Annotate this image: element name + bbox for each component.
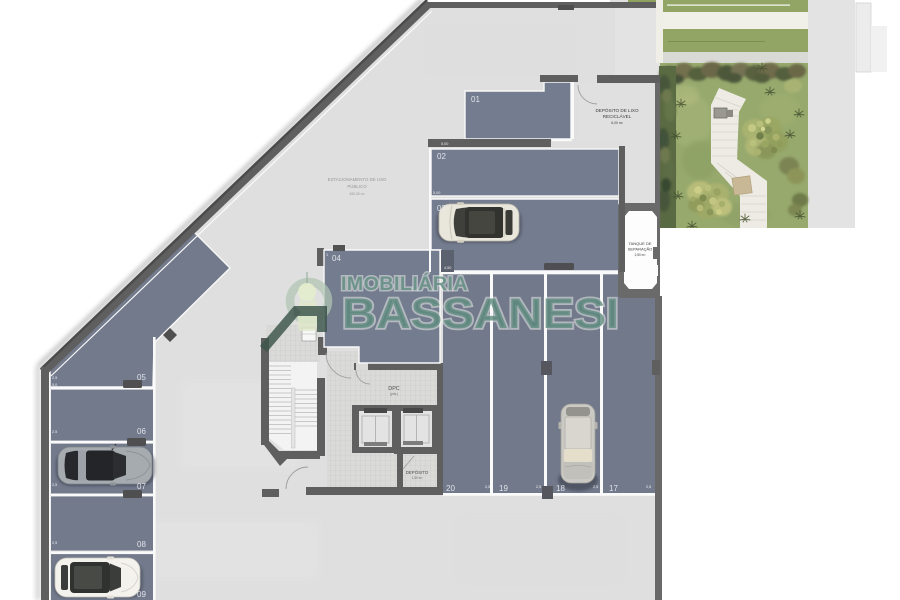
svg-text:2,5: 2,5 bbox=[536, 485, 541, 489]
svg-text:06: 06 bbox=[137, 427, 146, 436]
svg-text:18: 18 bbox=[556, 484, 565, 493]
svg-text:08: 08 bbox=[137, 540, 146, 549]
svg-text:DEPÓSITO DE LIXO: DEPÓSITO DE LIXO bbox=[595, 107, 638, 113]
svg-text:4,50: 4,50 bbox=[444, 266, 451, 270]
svg-text:5,0: 5,0 bbox=[52, 383, 57, 387]
svg-text:2,5: 2,5 bbox=[646, 485, 651, 489]
svg-text:04: 04 bbox=[332, 254, 341, 263]
svg-text:RECICLÁVEL: RECICLÁVEL bbox=[603, 113, 632, 119]
svg-text:01: 01 bbox=[471, 95, 480, 104]
svg-text:450,00 m²: 450,00 m² bbox=[349, 192, 365, 196]
svg-text:3: 3 bbox=[326, 253, 328, 257]
svg-text:2,5: 2,5 bbox=[52, 376, 57, 380]
svg-text:05: 05 bbox=[137, 373, 146, 382]
svg-text:03: 03 bbox=[437, 204, 446, 213]
svg-text:DEPÓSITO: DEPÓSITO bbox=[406, 470, 429, 475]
svg-text:2,5: 2,5 bbox=[485, 485, 490, 489]
svg-text:02: 02 bbox=[437, 152, 446, 161]
svg-text:2,5: 2,5 bbox=[593, 485, 598, 489]
svg-text:1,50 m²: 1,50 m² bbox=[412, 476, 423, 480]
svg-text:ESTACIONAMENTO DE USO: ESTACIONAMENTO DE USO bbox=[328, 177, 387, 182]
svg-text:5,00: 5,00 bbox=[441, 142, 448, 146]
svg-text:07: 07 bbox=[137, 482, 146, 491]
svg-text:6,00 m²: 6,00 m² bbox=[611, 121, 623, 125]
svg-text:TANQUE DE: TANQUE DE bbox=[628, 241, 651, 246]
svg-text:2,5: 2,5 bbox=[52, 541, 57, 545]
svg-text:09: 09 bbox=[137, 590, 146, 599]
svg-text:2,5: 2,5 bbox=[52, 430, 57, 434]
svg-text:2,5: 2,5 bbox=[52, 483, 57, 487]
svg-text:PÚBLICO: PÚBLICO bbox=[347, 184, 367, 189]
svg-text:(priv.): (priv.) bbox=[390, 392, 398, 396]
svg-text:BASSANESI: BASSANESI bbox=[342, 290, 619, 338]
svg-text:2,50 m²: 2,50 m² bbox=[635, 253, 646, 257]
svg-text:17: 17 bbox=[609, 484, 618, 493]
svg-text:19: 19 bbox=[499, 484, 508, 493]
svg-text:20: 20 bbox=[446, 484, 455, 493]
svg-text:SEPARAÇÃO: SEPARAÇÃO bbox=[628, 247, 653, 252]
svg-text:5,00: 5,00 bbox=[433, 191, 440, 195]
